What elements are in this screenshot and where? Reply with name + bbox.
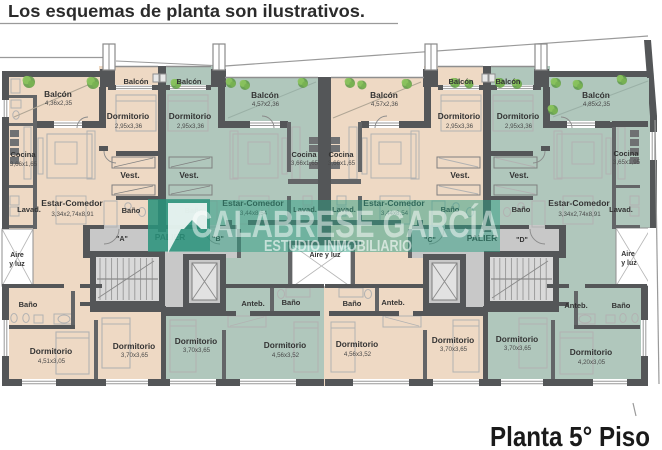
svg-text:Balcón: Balcón <box>123 77 148 86</box>
svg-text:Balcón: Balcón <box>495 77 520 86</box>
svg-text:4,57x2,36: 4,57x2,36 <box>371 101 399 108</box>
svg-text:Baño: Baño <box>122 206 141 215</box>
svg-text:Los esquemas de planta son ilu: Los esquemas de planta son ilustrativos. <box>8 1 365 21</box>
svg-text:"A": "A" <box>116 236 128 243</box>
svg-text:Dormitorio: Dormitorio <box>107 111 149 121</box>
svg-text:Cocina: Cocina <box>328 150 354 159</box>
svg-text:3,70x3,65: 3,70x3,65 <box>440 346 468 353</box>
svg-text:Dormitorio: Dormitorio <box>432 335 474 345</box>
svg-text:Anteb.: Anteb. <box>241 299 264 308</box>
svg-text:Baño: Baño <box>19 300 38 309</box>
svg-text:4,56x3,52: 4,56x3,52 <box>344 351 372 358</box>
svg-text:2,95x3,36: 2,95x3,36 <box>177 123 205 130</box>
svg-text:Balcón: Balcón <box>44 89 72 99</box>
svg-text:Vest.: Vest. <box>120 170 139 180</box>
svg-text:Lavad.: Lavad. <box>609 205 633 214</box>
svg-text:Baño: Baño <box>612 301 631 310</box>
svg-text:Dormitorio: Dormitorio <box>30 346 72 356</box>
svg-text:Balcón: Balcón <box>582 90 610 100</box>
svg-text:Vest.: Vest. <box>509 170 528 180</box>
svg-text:Anteb.: Anteb. <box>564 301 587 310</box>
svg-text:Dormitorio: Dormitorio <box>113 341 155 351</box>
svg-text:Estar-Comedor: Estar-Comedor <box>41 198 103 208</box>
svg-text:3,65x1,95: 3,65x1,95 <box>613 159 641 166</box>
svg-text:ESTUDIO INMOBILIARIO: ESTUDIO INMOBILIARIO <box>264 238 412 255</box>
svg-text:Cocina: Cocina <box>613 149 639 158</box>
svg-text:Vest.: Vest. <box>179 170 198 180</box>
svg-text:2,95x3,36: 2,95x3,36 <box>505 123 533 130</box>
svg-text:3,70x3,65: 3,70x3,65 <box>121 352 149 359</box>
svg-text:3,66x1,65: 3,66x1,65 <box>10 161 38 168</box>
svg-text:4,20x3,05: 4,20x3,05 <box>578 359 606 366</box>
svg-text:3,34x2,74x8,91: 3,34x2,74x8,91 <box>51 211 94 218</box>
svg-text:y luz: y luz <box>9 261 25 268</box>
svg-text:4,85x2,35: 4,85x2,35 <box>583 101 611 108</box>
svg-text:3,70x3,65: 3,70x3,65 <box>504 345 532 352</box>
svg-text:y luz: y luz <box>621 260 637 267</box>
svg-text:4,57x2,36: 4,57x2,36 <box>252 101 280 108</box>
svg-text:Dormitorio: Dormitorio <box>336 339 378 349</box>
svg-text:Dormitorio: Dormitorio <box>264 340 306 350</box>
svg-text:Dormitorio: Dormitorio <box>496 334 538 344</box>
svg-text:Dormitorio: Dormitorio <box>438 111 480 121</box>
svg-text:3,34x2,74x8,91: 3,34x2,74x8,91 <box>558 211 601 218</box>
svg-text:"D": "D" <box>516 237 528 244</box>
svg-text:Aire: Aire <box>621 251 635 258</box>
svg-text:Cocina: Cocina <box>291 150 317 159</box>
svg-text:Aire: Aire <box>10 252 24 259</box>
svg-text:4,56x3,52: 4,56x3,52 <box>272 352 300 359</box>
svg-text:2,95x3,36: 2,95x3,36 <box>446 123 474 130</box>
svg-text:3,70x3,65: 3,70x3,65 <box>183 347 211 354</box>
svg-text:Vest.: Vest. <box>450 170 469 180</box>
svg-text:Baño: Baño <box>282 298 301 307</box>
svg-text:Cocina: Cocina <box>10 150 36 159</box>
svg-text:Dormitorio: Dormitorio <box>175 336 217 346</box>
svg-text:3,66x1,65: 3,66x1,65 <box>328 160 356 167</box>
svg-text:Estar-Comedor: Estar-Comedor <box>548 198 610 208</box>
svg-text:4,36x2,35: 4,36x2,35 <box>45 100 73 107</box>
svg-text:Lavad.: Lavad. <box>17 205 41 214</box>
svg-text:Dormitorio: Dormitorio <box>570 347 612 357</box>
svg-text:Balcón: Balcón <box>448 77 473 86</box>
svg-text:Dormitorio: Dormitorio <box>497 111 539 121</box>
svg-text:Anteb.: Anteb. <box>381 298 404 307</box>
svg-text:Balcón: Balcón <box>370 90 398 100</box>
svg-text:Planta 5° Piso: Planta 5° Piso <box>490 421 650 450</box>
svg-text:Baño: Baño <box>512 205 531 214</box>
svg-text:Balcón: Balcón <box>176 77 201 86</box>
svg-text:Dormitorio: Dormitorio <box>169 111 211 121</box>
svg-text:Baño: Baño <box>343 299 362 308</box>
svg-text:Balcón: Balcón <box>251 90 279 100</box>
svg-text:4,51x3,05: 4,51x3,05 <box>38 358 66 365</box>
svg-text:2,95x3,36: 2,95x3,36 <box>115 123 143 130</box>
svg-text:3,66x1,65: 3,66x1,65 <box>291 160 319 167</box>
